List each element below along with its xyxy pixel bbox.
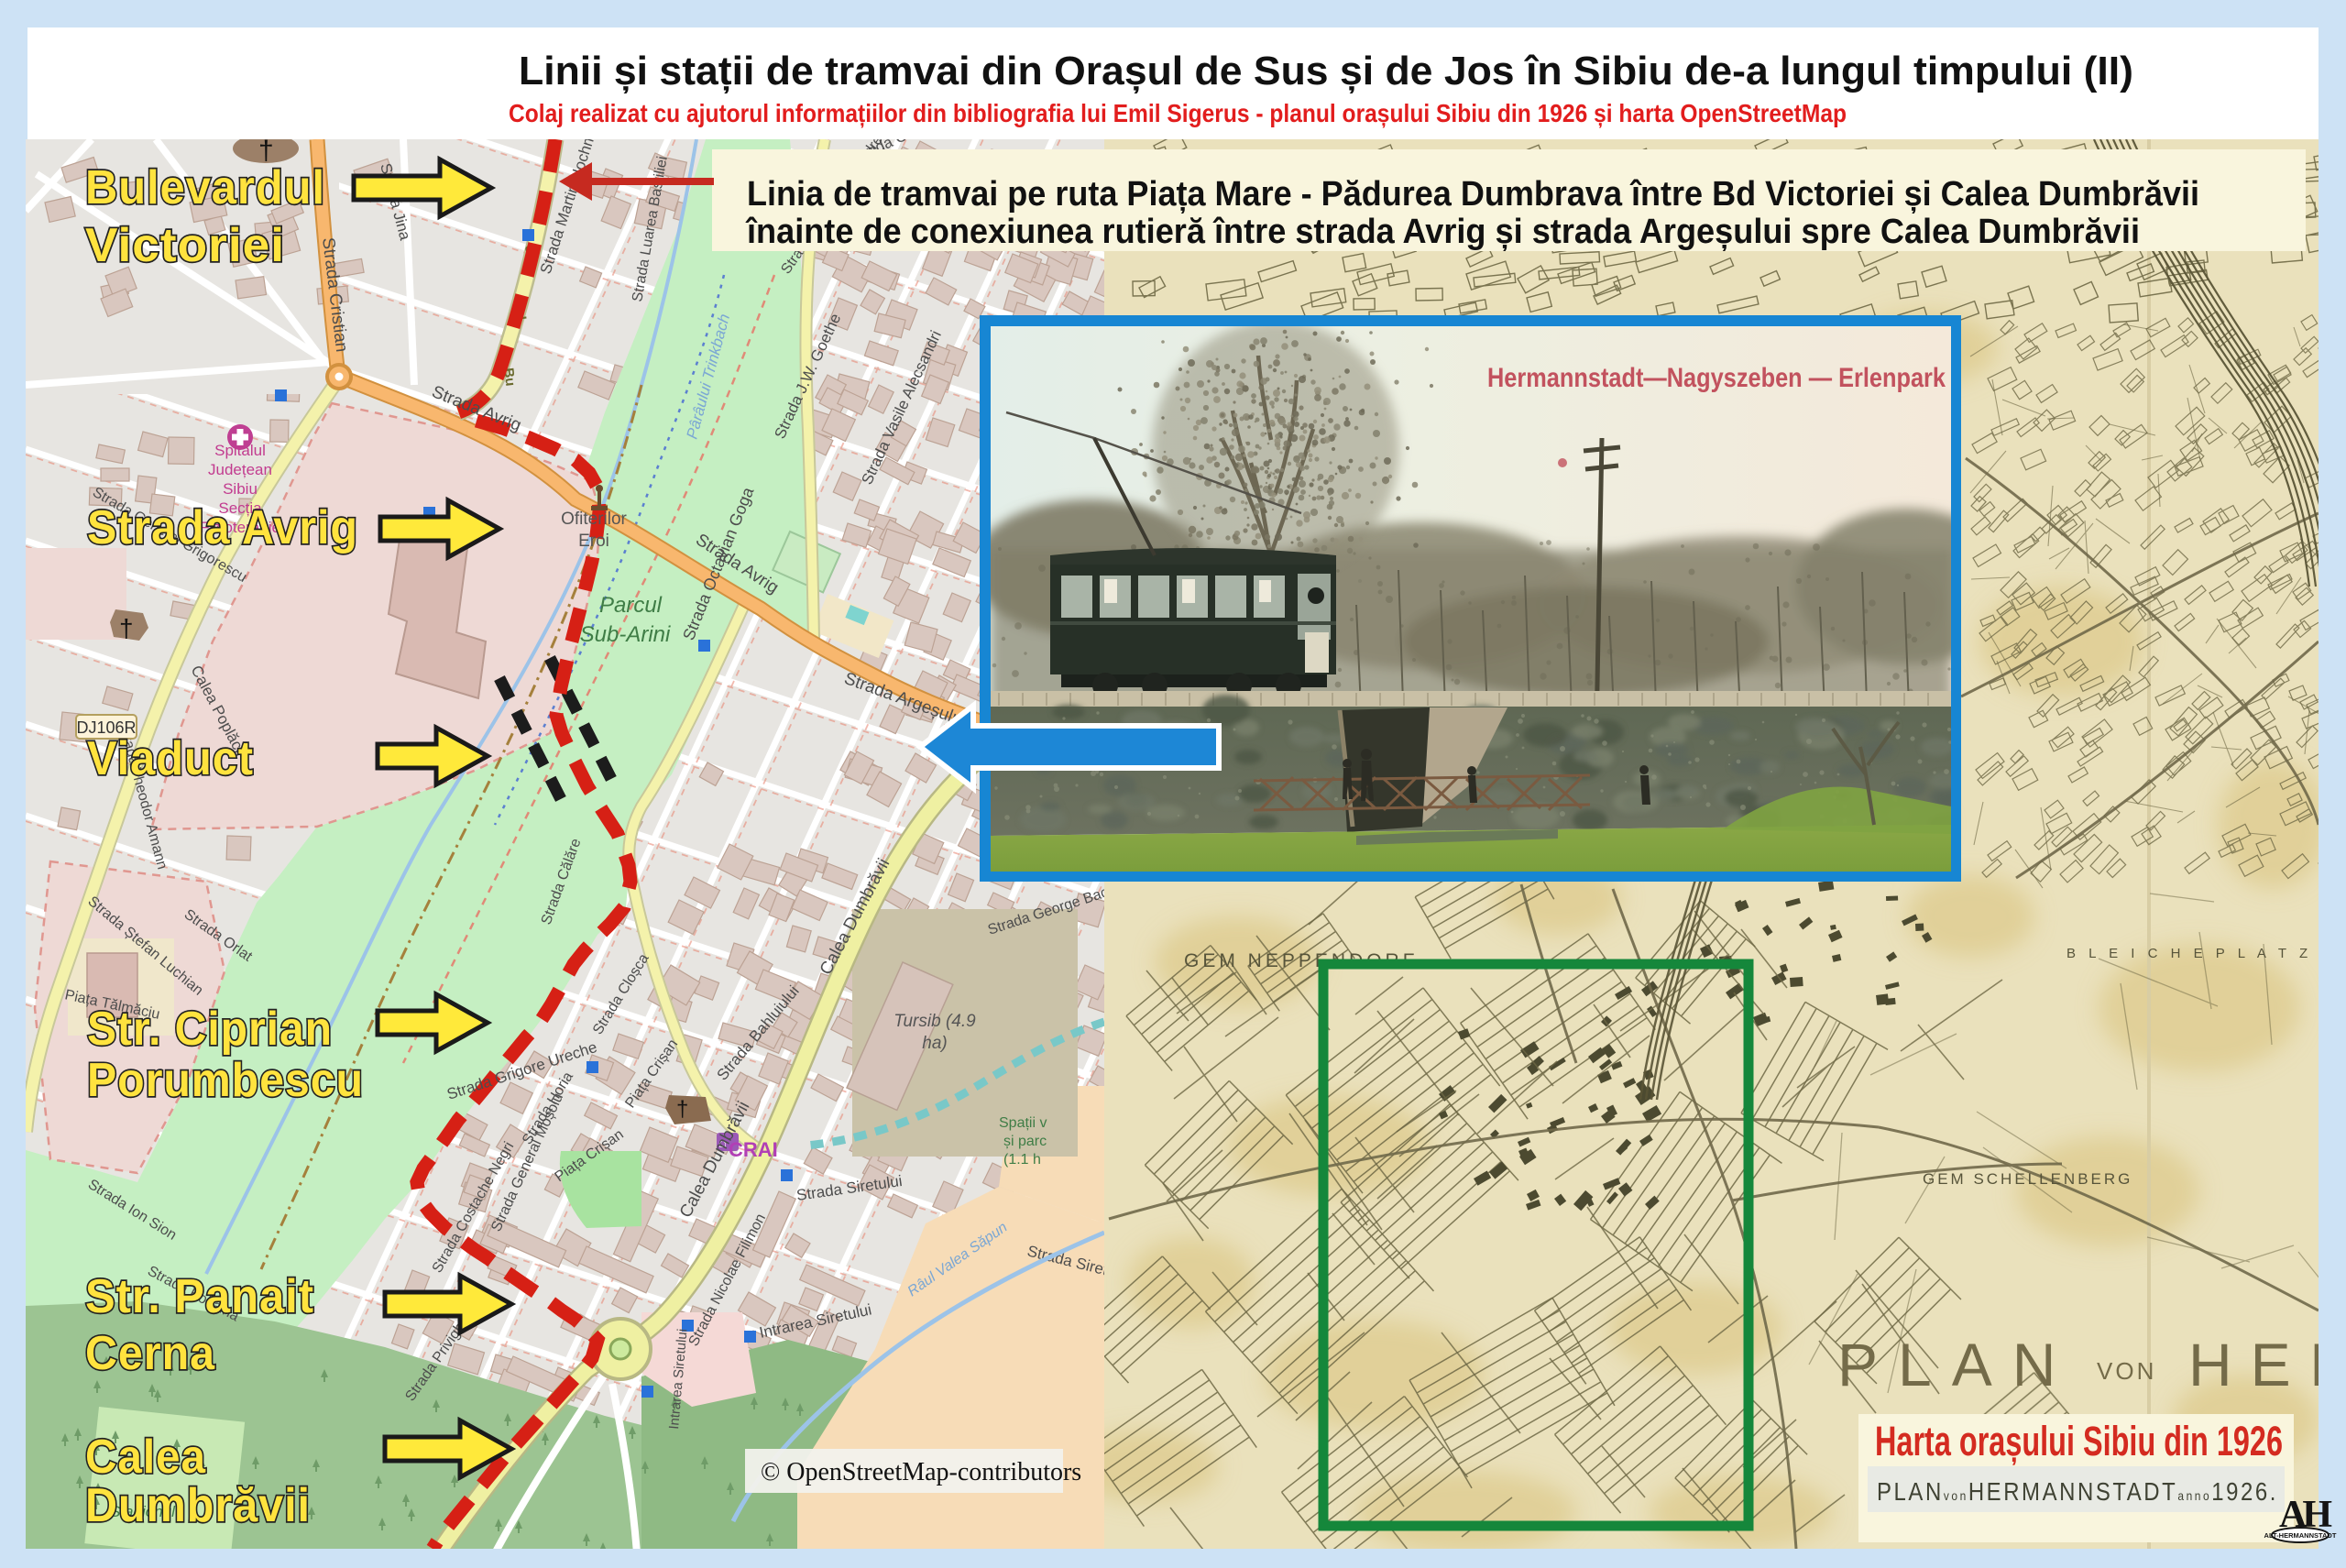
svg-text:Viaduct: Viaduct [87,732,254,785]
svg-text:Dumbrăvii: Dumbrăvii [85,1479,311,1532]
svg-text:Victoriei: Victoriei [85,219,285,272]
svg-text:Bulevardul: Bulevardul [85,161,325,214]
svg-text:Sub-Arini: Sub-Arini [580,622,671,647]
svg-text:Hermannstadt—Nagyszeben — Erle: Hermannstadt—Nagyszeben — Erlenpark [1487,363,1946,393]
svg-text:CRAI: CRAI [729,1138,778,1161]
svg-text:© OpenStreetMap-contributors: © OpenStreetMap-contributors [761,1458,1081,1486]
svg-text:PLAN: PLAN [1837,1331,2076,1398]
svg-text:†: † [119,614,134,642]
svg-text:Ofiterilor: Ofiterilor [561,510,627,529]
svg-text:Parcul: Parcul [599,593,663,618]
svg-text:și parc: și parc [1003,1134,1047,1149]
svg-text:B L E I C H E P L A T Z: B L E I C H E P L A T Z [2066,946,2312,961]
svg-text:(1.1 h: (1.1 h [1003,1152,1041,1168]
svg-text:Porumbescu: Porumbescu [87,1054,364,1107]
svg-text:GEM SCHELLENBERG: GEM SCHELLENBERG [1923,1170,2132,1188]
svg-text:Linia de tramvai pe ruta Piața: Linia de tramvai pe ruta Piața Mare - Pă… [747,175,2199,214]
svg-text:Calea: Calea [85,1431,206,1484]
svg-text:Cerna: Cerna [85,1327,215,1380]
svg-text:†: † [676,1097,688,1122]
svg-text:ha): ha) [922,1034,947,1053]
svg-text:PLANvonHERMANNSTADTanno1926.: PLANvonHERMANNSTADTanno1926. [1877,1477,2278,1506]
svg-text:Spații v: Spații v [999,1115,1047,1131]
svg-text:Str. Panait: Str. Panait [85,1270,314,1323]
svg-text:Harta orașului Sibiu din 1926: Harta orașului Sibiu din 1926 [1875,1418,2283,1464]
svg-text:VON: VON [2097,1357,2156,1385]
svg-text:Linii și stații de tramvai din: Linii și stații de tramvai din Orașul de… [519,49,2133,93]
svg-text:Sibiu: Sibiu [223,480,258,498]
svg-text:ALT-HERMANNSTADT: ALT-HERMANNSTADT [2264,1531,2337,1540]
svg-text:Județean: Județean [208,461,272,478]
svg-text:înainte de conexiunea rutieră: înainte de conexiunea rutieră între stra… [745,213,2140,251]
svg-text:Tursib (4.9: Tursib (4.9 [893,1012,976,1031]
svg-text:Eroi: Eroi [578,532,609,551]
svg-text:Strada Avrig: Strada Avrig [87,501,358,554]
svg-text:Spitalul: Spitalul [214,442,266,459]
svg-text:Str. Ciprian: Str. Ciprian [87,1003,333,1056]
svg-text:Colaj realizat cu ajutorul inf: Colaj realizat cu ajutorul informațiilor… [509,99,1847,127]
